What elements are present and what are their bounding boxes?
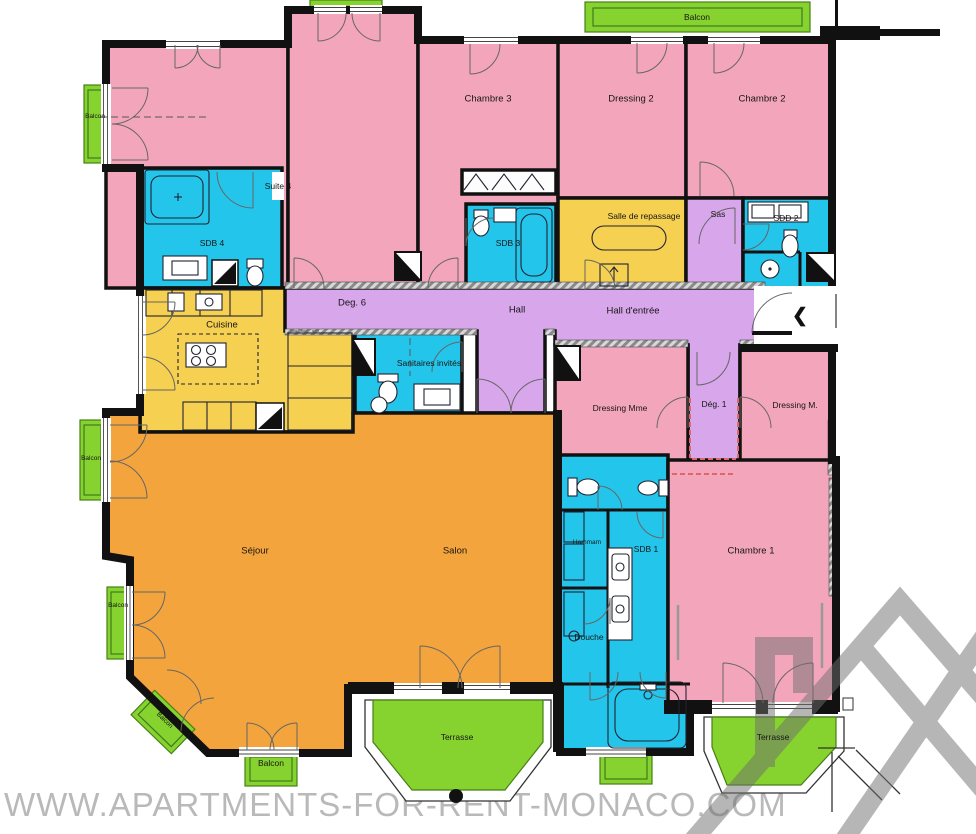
label-balcon-top: Balcon [684, 13, 710, 22]
label-sdd-2: SDD 2 [773, 214, 798, 223]
label-suite-4: Suite 4 [265, 182, 291, 191]
label-cuisine: Cuisine [206, 320, 238, 330]
toilet-wc-left [568, 478, 577, 496]
label-balcon-left-3: Balcon [108, 603, 128, 610]
floor-plan-drawing [0, 0, 976, 834]
room-dressing-2-area [558, 40, 686, 198]
label-hall: Hall [509, 305, 525, 315]
label-chambre-3: Chambre 3 [465, 94, 512, 104]
room-suite-4-bed-area [288, 10, 418, 288]
rooms-layer [106, 10, 836, 753]
label-balcon-bottom: Balcon [258, 759, 284, 768]
label-salle-de-repassage: Salle de repassage [608, 212, 681, 221]
entrance-arrow-icon: ❮ [792, 305, 808, 328]
label-sdb-1: SDB 1 [634, 545, 659, 554]
label-dressing-2: Dressing 2 [608, 94, 653, 104]
label-balcon-left-2: Balcon [81, 456, 101, 463]
label-hammam: Hammam [573, 540, 601, 547]
label-terrasse-1: Terrasse [441, 733, 474, 742]
label-deg-1: Dég. 1 [701, 400, 726, 409]
toilet-wc-right [659, 480, 668, 496]
label-balcon-left-1: Balcon [85, 114, 105, 121]
label-hall-entree: Hall d'entrée [606, 306, 659, 316]
label-salon: Salon [443, 546, 467, 556]
entrance-recess [740, 286, 838, 352]
room-chambre-2-area [686, 40, 832, 198]
label-sdb-4: SDB 4 [200, 239, 225, 248]
sink-sdb3 [494, 208, 516, 222]
label-deg-6: Deg. 6 [338, 298, 366, 308]
label-douche: Douche [574, 633, 603, 642]
label-chambre-2: Chambre 2 [739, 94, 786, 104]
label-sas: Sas [711, 210, 726, 219]
sink-sdb4 [163, 256, 207, 280]
neighbour-structure [820, 0, 940, 40]
floor-plan: WWW.APARTMENTS-FOR-RENT-MONACO.COM [0, 0, 976, 834]
label-terrasse-2: Terrasse [757, 733, 790, 742]
label-dressing-m: Dressing M. [772, 401, 817, 410]
label-sdb-3: SDB 3 [496, 239, 521, 248]
terrace-post [449, 789, 463, 803]
label-dressing-mme: Dressing Mme [593, 404, 648, 413]
sink-sanitaires [414, 384, 460, 410]
wall-salon-sdb1 [553, 410, 562, 752]
label-sanitaires-invites: Sanitaires invités [397, 359, 461, 368]
kitchen-sink [196, 294, 222, 310]
label-chambre-1: Chambre 1 [728, 546, 775, 556]
label-sejour: Séjour [241, 546, 268, 556]
